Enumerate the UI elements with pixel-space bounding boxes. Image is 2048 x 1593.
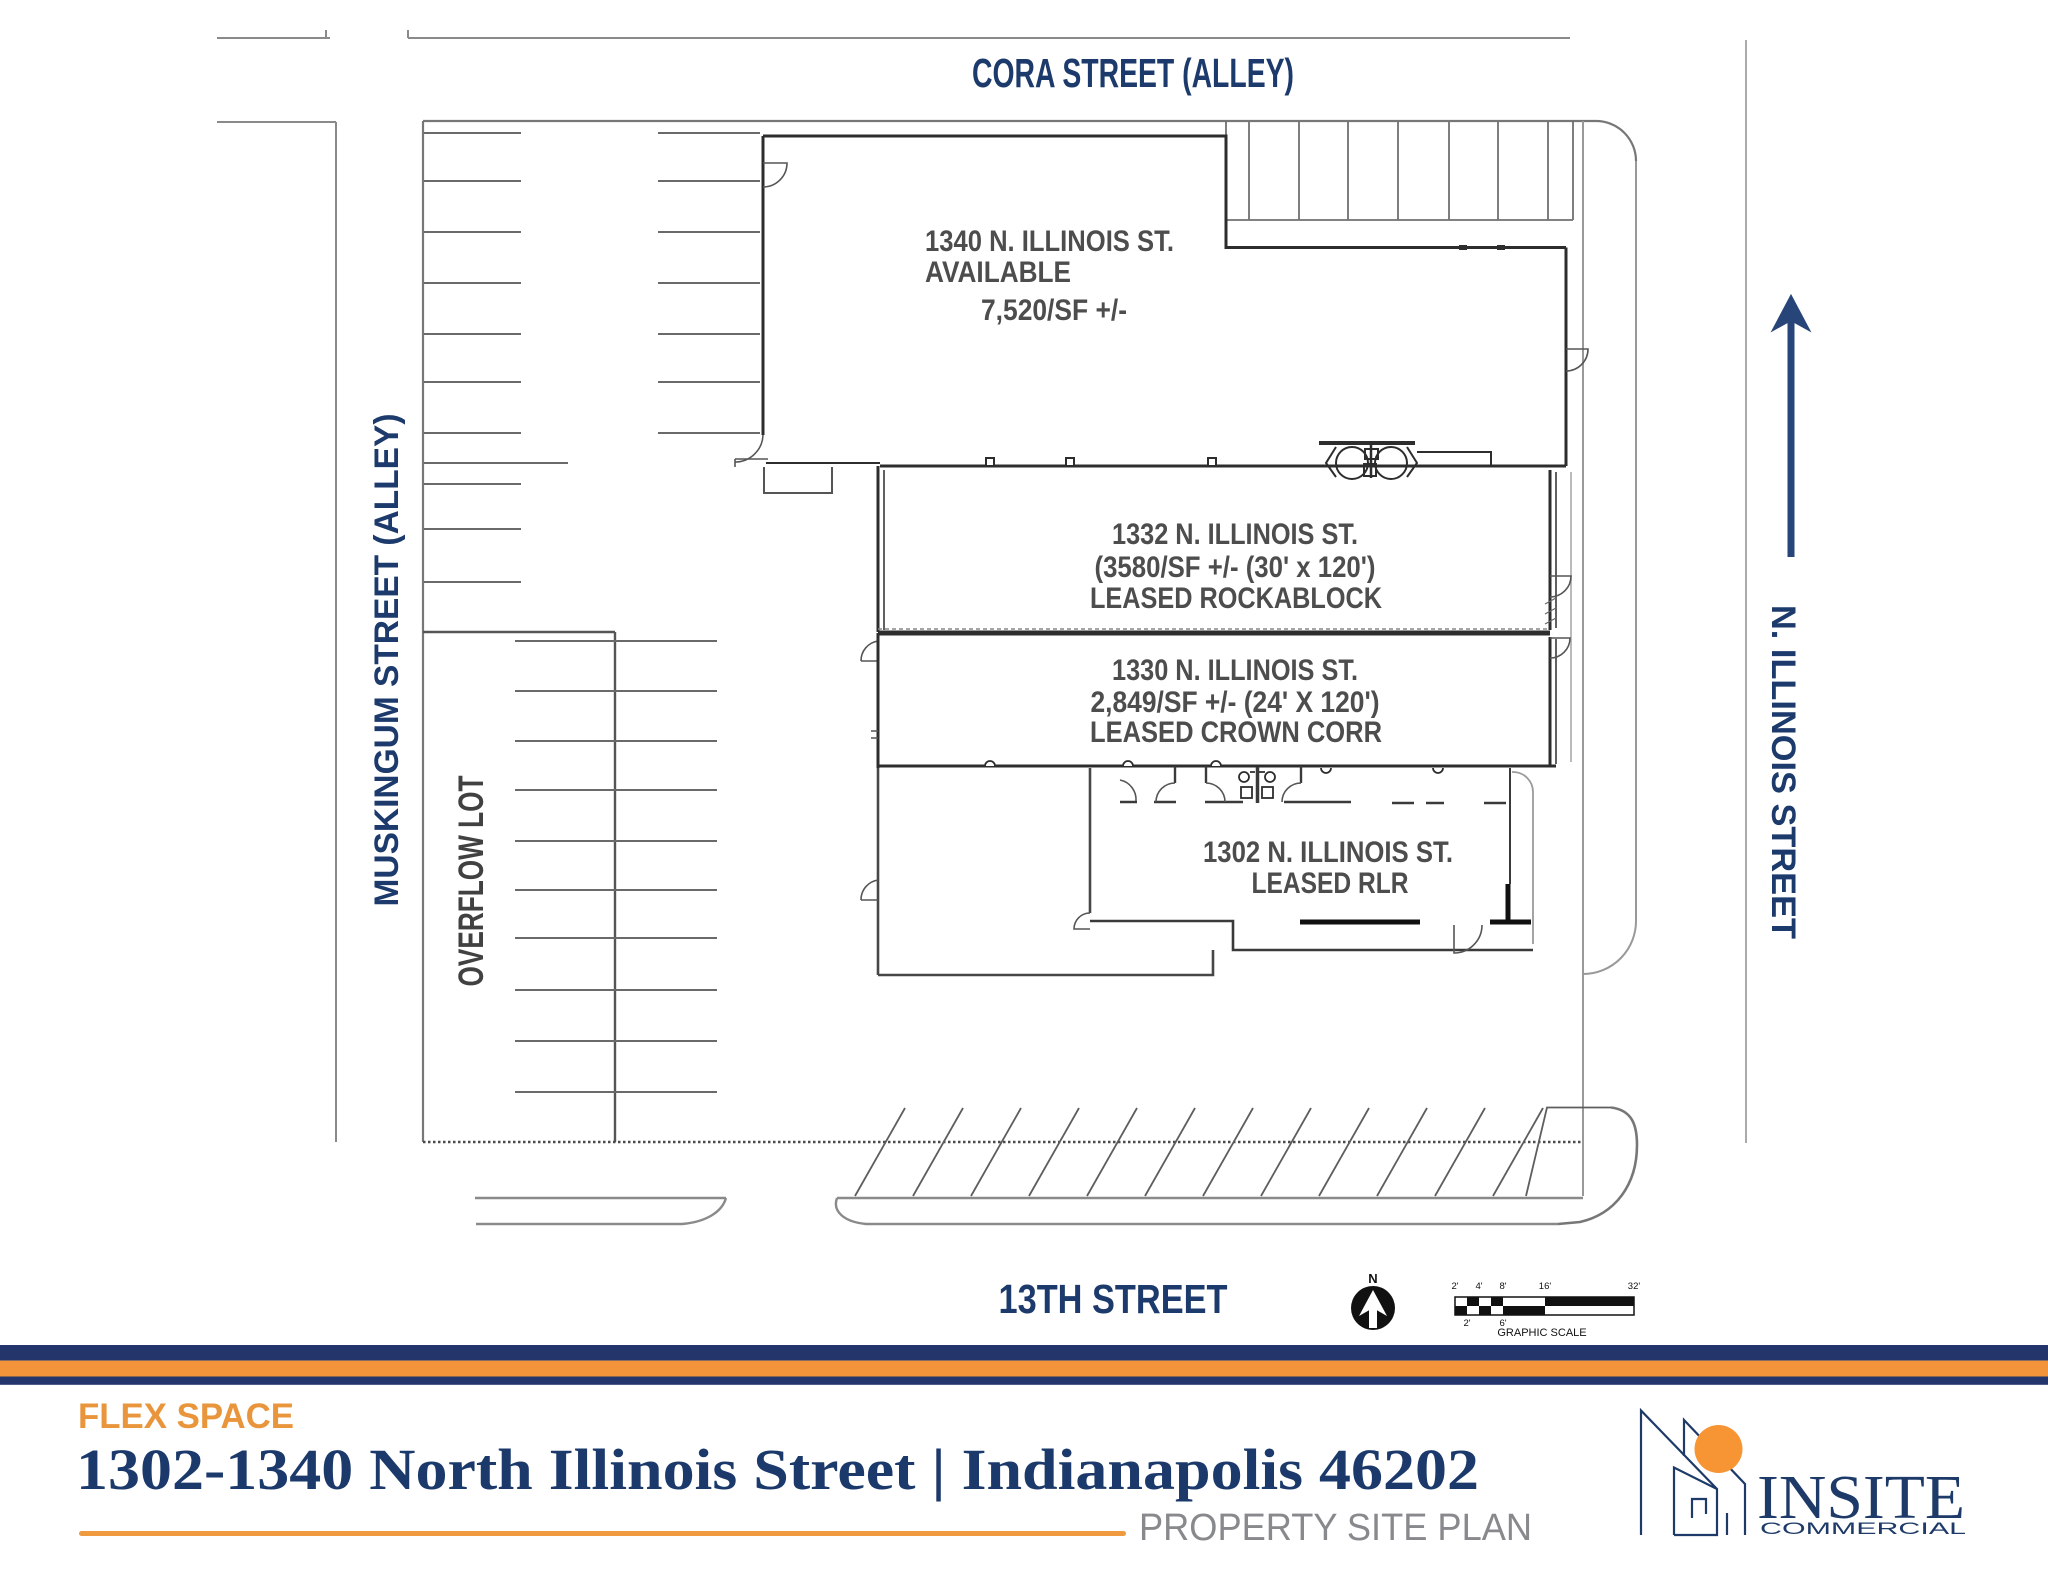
svg-text:1332 N. ILLINOIS ST.: 1332 N. ILLINOIS ST. [1112, 518, 1358, 551]
svg-text:7,520/SF +/-: 7,520/SF +/- [981, 294, 1127, 327]
svg-text:32': 32' [1628, 1281, 1641, 1292]
svg-text:1340 N. ILLINOIS ST.: 1340 N. ILLINOIS ST. [925, 225, 1174, 258]
svg-text:PROPERTY SITE PLAN: PROPERTY SITE PLAN [1139, 1507, 1532, 1549]
svg-text:N: N [1368, 1271, 1377, 1286]
svg-text:2': 2' [1451, 1281, 1458, 1292]
svg-text:1330 N. ILLINOIS ST.: 1330 N. ILLINOIS ST. [1112, 654, 1358, 687]
svg-text:13TH STREET: 13TH STREET [999, 1276, 1228, 1322]
svg-text:FLEX SPACE: FLEX SPACE [78, 1397, 294, 1436]
svg-text:COMMERCIAL: COMMERCIAL [1760, 1519, 1966, 1538]
svg-text:4': 4' [1475, 1281, 1482, 1292]
svg-text:LEASED RLR: LEASED RLR [1252, 867, 1409, 900]
svg-text:CORA STREET (ALLEY): CORA STREET (ALLEY) [972, 50, 1294, 96]
svg-text:OVERFLOW LOT: OVERFLOW LOT [452, 776, 491, 987]
svg-text:(3580/SF +/- (30' x 120'): (3580/SF +/- (30' x 120') [1095, 551, 1376, 584]
svg-text:2,849/SF +/- (24' X 120'): 2,849/SF +/- (24' X 120') [1091, 686, 1380, 719]
svg-text:1302-1340 North Illinois Stree: 1302-1340 North Illinois Street | Indian… [76, 1437, 1479, 1502]
svg-text:LEASED CROWN CORR: LEASED CROWN CORR [1090, 716, 1382, 749]
svg-text:AVAILABLE: AVAILABLE [925, 256, 1071, 289]
svg-text:LEASED ROCKABLOCK: LEASED ROCKABLOCK [1090, 582, 1382, 615]
svg-text:8': 8' [1499, 1281, 1506, 1292]
svg-text:MUSKINGUM STREET (ALLEY): MUSKINGUM STREET (ALLEY) [368, 414, 406, 907]
svg-text:N. ILLINOIS STREET: N. ILLINOIS STREET [1764, 605, 1802, 939]
svg-text:1302 N. ILLINOIS ST.: 1302 N. ILLINOIS ST. [1203, 836, 1453, 869]
svg-text:2': 2' [1463, 1318, 1470, 1329]
svg-text:16': 16' [1539, 1281, 1552, 1292]
svg-text:GRAPHIC SCALE: GRAPHIC SCALE [1497, 1327, 1586, 1339]
